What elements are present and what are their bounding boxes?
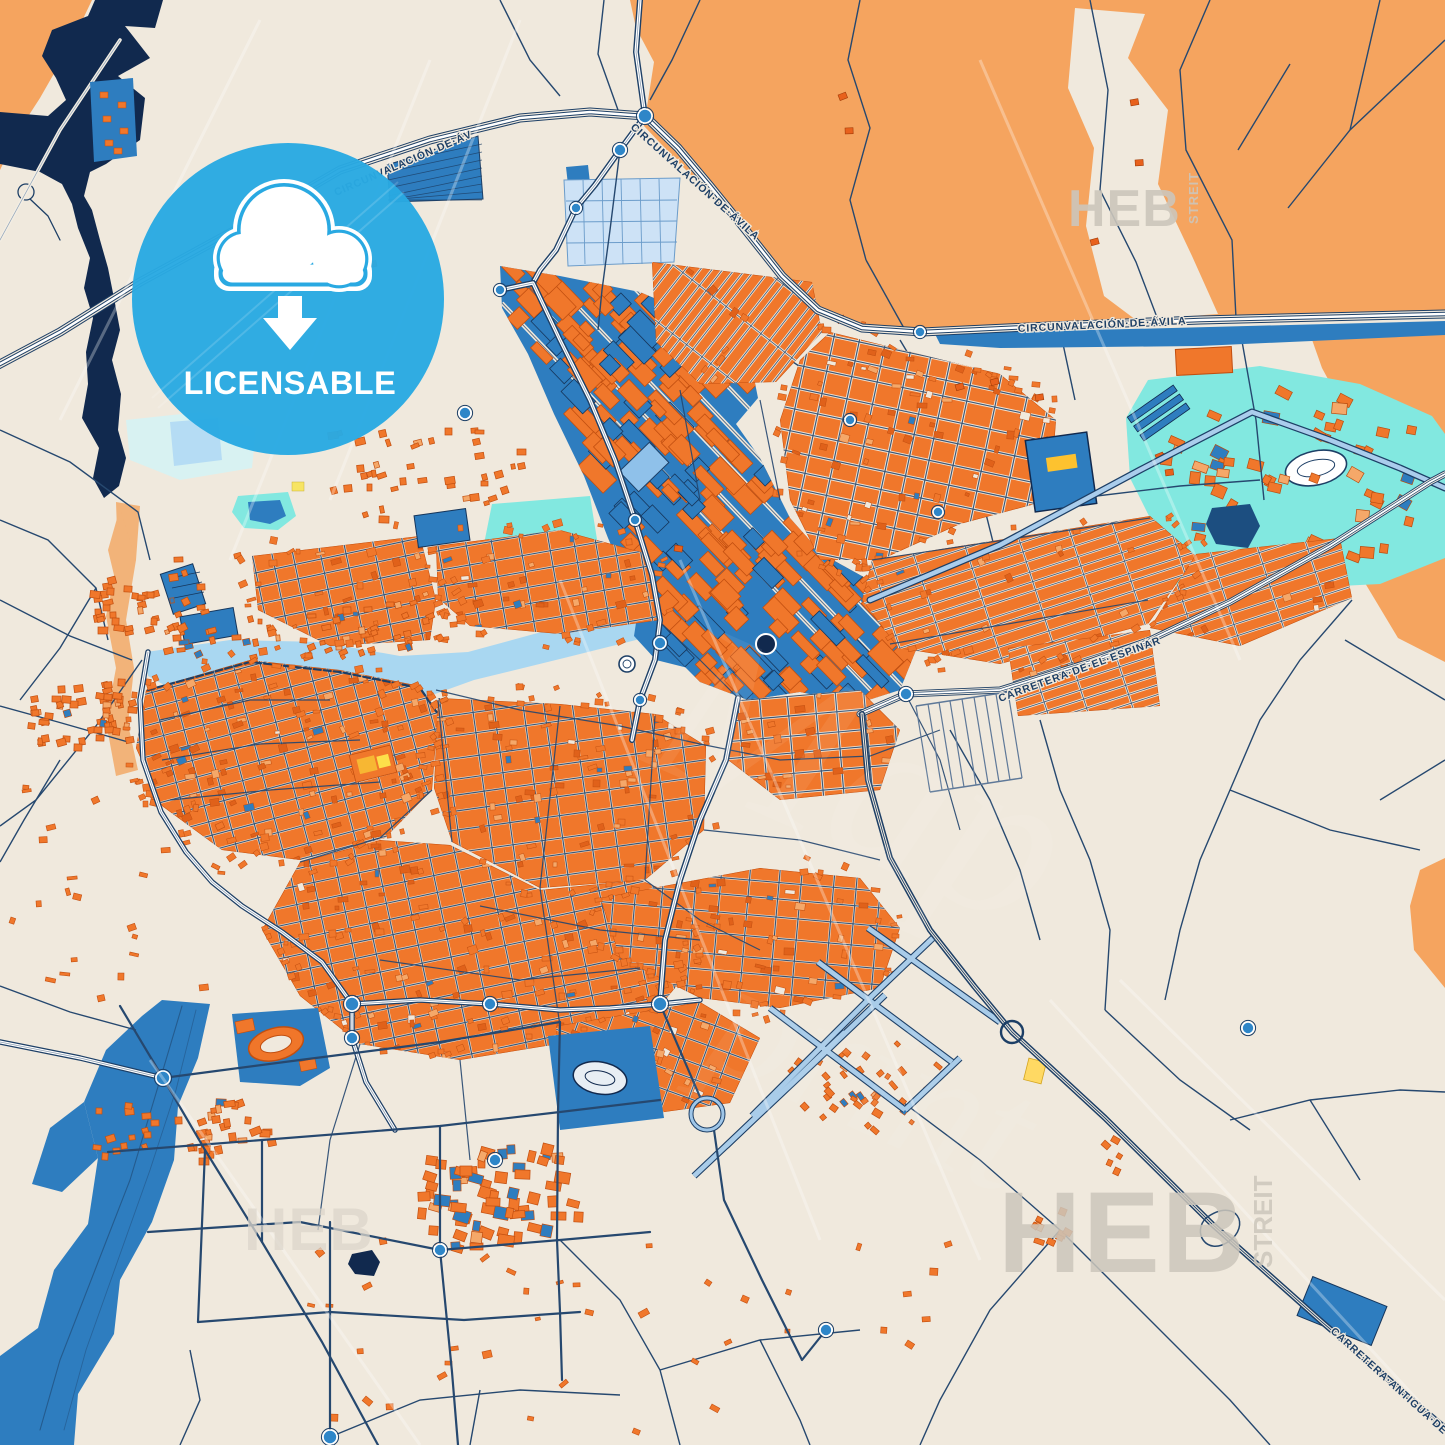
svg-text:STREIT: STREIT: [1248, 1175, 1278, 1268]
svg-text:HEB: HEB: [244, 1196, 374, 1263]
svg-text:LICENSABLE: LICENSABLE: [184, 365, 397, 401]
svg-text:HEB: HEB: [998, 1169, 1247, 1297]
svg-text:STREIT: STREIT: [1186, 172, 1201, 224]
svg-text:HEB: HEB: [1068, 180, 1181, 238]
